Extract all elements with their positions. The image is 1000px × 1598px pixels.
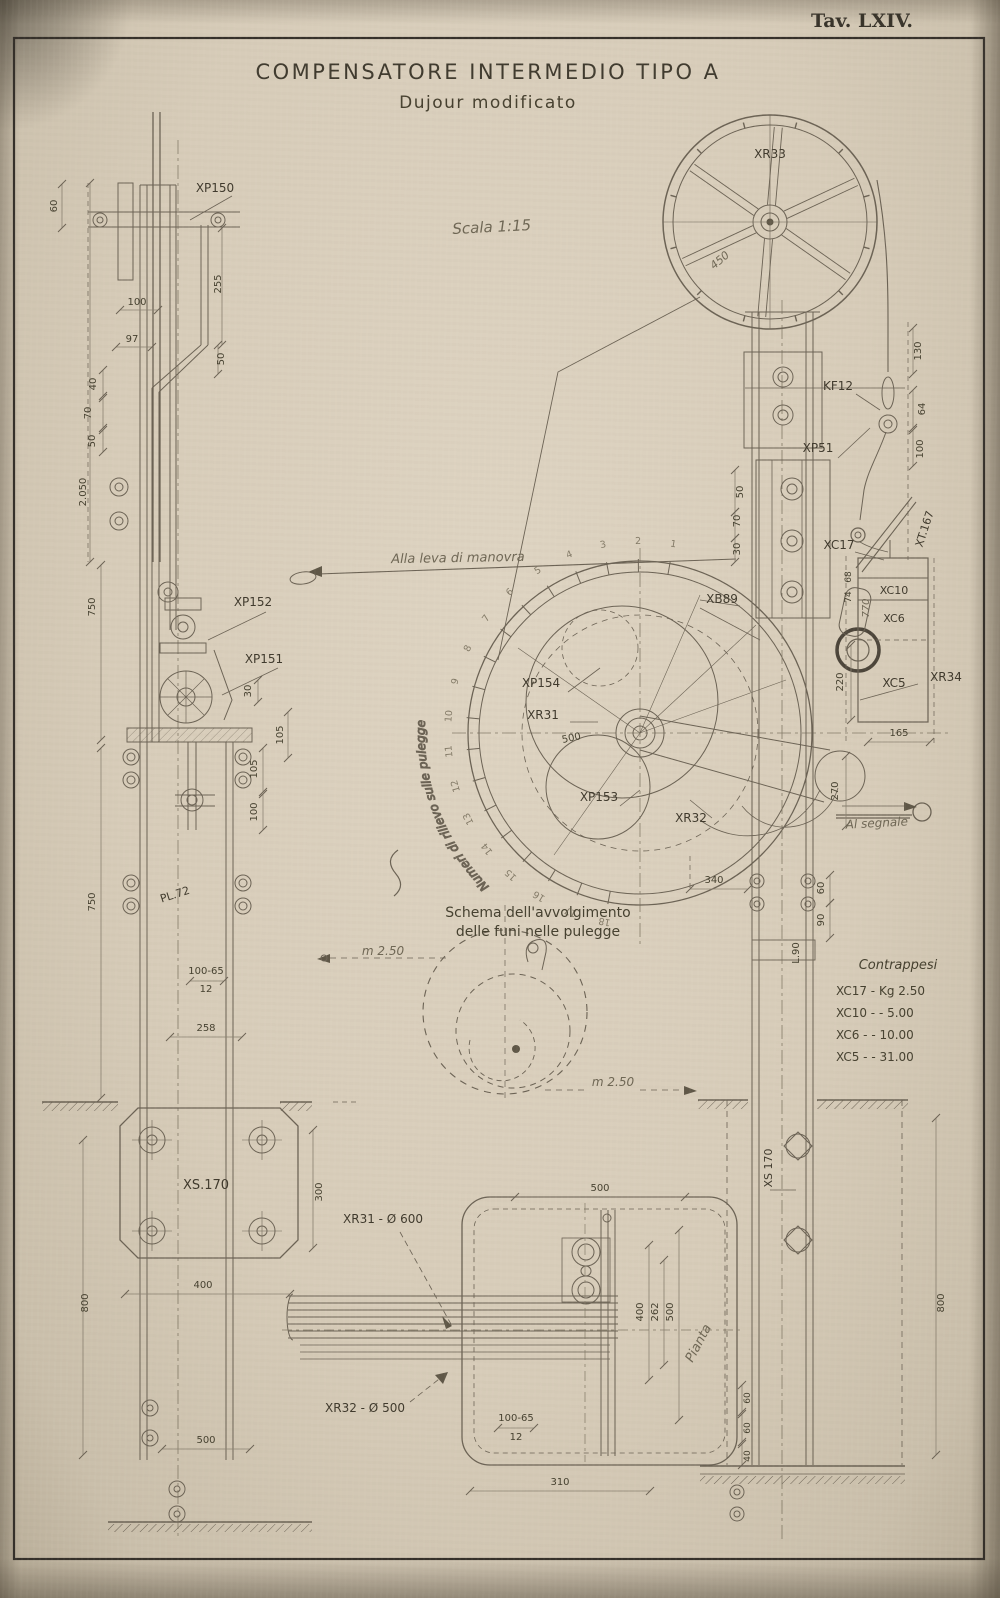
dim-258: 258 (196, 1023, 215, 1034)
dial-number-15: 15 (503, 867, 519, 883)
dim-70-post: 70 (732, 515, 743, 528)
scale-note: Scala 1:15 (452, 216, 532, 238)
dim-130: 130 (913, 341, 924, 360)
wheel-spoke (786, 228, 850, 273)
label-xr31-diam: XR31 - Ø 600 (343, 1212, 423, 1226)
dial-number-11: 11 (443, 745, 455, 758)
text-labels-layer: XP1506025510097504070502.050750XP152XP15… (49, 147, 962, 1488)
label-xr32-diam: XR32 - Ø 500 (325, 1401, 405, 1415)
plan-post-section (601, 1210, 615, 1456)
note-pianta: Pianta (683, 1322, 715, 1365)
dial-number-14: 14 (479, 841, 495, 857)
wheel-rim-tick (697, 291, 701, 295)
right-post-bolts (750, 874, 815, 960)
dial-number-12: 12 (449, 779, 463, 794)
dim-50-b: 50 (87, 435, 98, 448)
support-arm (214, 650, 232, 720)
dial-number-8: 8 (462, 643, 475, 653)
dim-60-base-b: 60 (743, 1422, 753, 1434)
dial-number-3: 3 (599, 539, 607, 551)
counterweight-table: ContrappesiXC17 - Kg 2.50XC10 - - 5.00XC… (836, 958, 938, 1064)
label-xp151: XP151 (245, 652, 283, 666)
dim-300: 300 (314, 1182, 325, 1201)
dim-m250-left: m 2.50 (362, 944, 405, 958)
dim-340: 340 (704, 875, 723, 886)
dim-255: 255 (213, 274, 224, 293)
label-xt167: XT.167 (913, 509, 937, 548)
dim-800-left: 800 (80, 1293, 91, 1312)
dim-500-plan-top: 500 (590, 1183, 609, 1194)
wheel-spoke (690, 171, 754, 216)
dim-profile-plan-top: 100-65 (498, 1413, 533, 1424)
wheel-rim-tick (743, 316, 745, 322)
wheel-spoke (775, 128, 782, 206)
dim-500-left-bottom: 500 (196, 1435, 215, 1446)
dial-number-10: 10 (443, 710, 455, 723)
wheel-rim-tick (697, 149, 701, 153)
dial-tick-6 (522, 605, 531, 615)
dim-74: 74 (844, 591, 854, 603)
dial-tick-14 (501, 830, 511, 838)
dim-310: 310 (550, 1477, 569, 1488)
operating-rope (289, 297, 736, 660)
wheel-spoke (782, 235, 846, 280)
dim-400-left: 400 (193, 1280, 212, 1291)
plate-number: Tav. LXIV. (811, 10, 913, 32)
counterweight-stack (846, 540, 928, 745)
dial-tick-8 (484, 656, 496, 662)
dim-profile-left-top: 100-65 (188, 966, 223, 977)
technical-drawing-canvas: Tav. LXIV. COMPENSATORE INTERMEDIO TIPO … (0, 0, 1000, 1598)
dial-number-5: 5 (532, 565, 543, 578)
dial-number-4: 4 (565, 549, 575, 561)
dim-97: 97 (126, 334, 139, 345)
label-xp152: XP152 (234, 595, 272, 609)
leader-lines (190, 196, 918, 818)
dim-50-a: 50 (216, 353, 227, 366)
dim-68: 68 (844, 571, 854, 583)
wheel-rim-tick (839, 149, 843, 153)
right-elevation-view (190, 115, 934, 1540)
drawing-title: COMPENSATORE INTERMEDIO TIPO A (255, 60, 720, 84)
dim-220: 220 (835, 672, 846, 691)
rope-winding-schema (317, 850, 697, 1100)
dim-770: 770 (861, 598, 872, 617)
label-xp150: XP150 (196, 181, 234, 195)
dial-graduations: 123456789101112131415161718 (443, 536, 677, 928)
wheel-rim-tick (671, 247, 677, 249)
label-xp153: XP153 (580, 790, 618, 804)
dial-mechanism-view: Numeri di rilievo sulle pulegge 12345678… (289, 297, 948, 948)
flange-plate (127, 728, 252, 742)
wheel-spoke (758, 239, 765, 317)
dim-40-a: 40 (88, 378, 99, 391)
wheel-ropes (851, 180, 916, 572)
label-xc10: XC10 (880, 584, 908, 597)
dial-number-13: 13 (461, 811, 476, 827)
plan-pulley-stack (287, 1294, 618, 1359)
label-xb89: XB89 (706, 592, 738, 606)
dim-100-right: 100 (915, 439, 926, 458)
dial-number-16: 16 (531, 888, 547, 904)
contrappesi-title: Contrappesi (859, 958, 938, 973)
dim-800-right: 800 (936, 1293, 947, 1312)
dim-90-post: 90 (816, 914, 827, 927)
note-alla-leva: Alla leva di manovra (390, 550, 525, 567)
top-anchor-plate (118, 183, 133, 280)
dial-number-9: 9 (449, 677, 461, 686)
dim-262-plan: 262 (650, 1302, 661, 1321)
wheel-rim-tick (743, 123, 745, 129)
label-xp154: XP154 (522, 676, 560, 690)
dim-l90: L.90 (791, 942, 802, 963)
wheel-rim-tick (795, 123, 797, 129)
top-bracket-rails (88, 212, 240, 227)
dim-105-a: 105 (275, 725, 286, 744)
dial-tick-7 (500, 629, 510, 637)
note-al-segnale: Al segnale (844, 814, 908, 831)
dim-2050: 2.050 (78, 478, 89, 507)
label-pl72: PL.72 (159, 884, 192, 906)
post-bolts (110, 478, 251, 914)
dim-40-base: 40 (743, 1450, 753, 1462)
dial-number-6: 6 (504, 586, 516, 598)
post-channel-right-edge (226, 742, 233, 1460)
label-xc17: XC17 (824, 538, 855, 552)
dim-270: 270 (830, 781, 841, 800)
label-kf12: KF12 (823, 379, 853, 393)
post-channel-edges (140, 185, 176, 1460)
label-xc5: XC5 (882, 676, 905, 690)
dim-100-b: 100 (249, 802, 260, 821)
dim-105-b: 105 (249, 759, 260, 778)
wheel-spoke (787, 185, 858, 218)
note-schema-1: Schema dell'avvolgimento (445, 905, 630, 921)
dim-30-post: 30 (732, 543, 743, 556)
wheel-rim-tick (671, 195, 677, 197)
drawing-subtitle: Dujour modificato (399, 93, 577, 113)
scanned-drawing-page: Tav. LXIV. COMPENSATORE INTERMEDIO TIPO … (0, 0, 1000, 1598)
contrappesi-row-XC17: XC17 - Kg 2.50 (836, 984, 925, 998)
dimension-lines-layer (58, 179, 940, 1495)
dial-tick-5 (547, 586, 554, 597)
dial-number-1: 1 (669, 538, 677, 550)
dim-165: 165 (889, 728, 908, 739)
post-bracket-upper (744, 352, 822, 448)
dim-400-plan: 400 (635, 1302, 646, 1321)
dim-70-a: 70 (83, 407, 94, 420)
dim-60-base-a: 60 (743, 1392, 753, 1404)
contrappesi-row-XC6: XC6 - - 10.00 (836, 1028, 914, 1042)
label-xr33: XR33 (754, 147, 786, 161)
dim-m250-right: m 2.50 (592, 1075, 635, 1089)
wheel-spoke (766, 239, 773, 317)
pulley-xr31-circle (526, 606, 718, 798)
wheel-rim-tick (864, 195, 870, 197)
pulley-xr32-circle (546, 735, 650, 839)
dim-profile-left-bottom: 12 (200, 984, 213, 995)
label-xc6: XC6 (883, 612, 904, 625)
contrappesi-row-XC5: XC5 - - 31.00 (836, 1050, 914, 1064)
contrappesi-row-XC10: XC10 - - 5.00 (836, 1006, 914, 1020)
dial-tick-15 (523, 852, 532, 862)
label-xp51: XP51 (803, 441, 834, 455)
dim-100-left: 100 (127, 297, 146, 308)
dim-750-lower: 750 (87, 892, 98, 911)
note-schema-2: delle funi nelle pulegge (456, 924, 620, 940)
dim-30-mid: 30 (243, 685, 254, 698)
dim-50-post: 50 (735, 486, 746, 499)
dial-tick-16 (548, 870, 555, 881)
dim-500-plan-right: 500 (665, 1302, 676, 1321)
wheel-rim-tick (839, 291, 843, 295)
base-right (700, 1466, 905, 1521)
label-xs170-plate: XS.170 (183, 1178, 229, 1193)
dim-750-upper: 750 (87, 597, 98, 616)
wheel-spoke (767, 127, 774, 205)
label-xr34: XR34 (930, 670, 962, 684)
ground-line-left (42, 1102, 312, 1111)
dim-profile-plan-bottom: 12 (510, 1432, 523, 1443)
wheel-rim-tick (864, 247, 870, 249)
dim-450-wheel: 450 (708, 249, 732, 272)
wheel-rim-tick (795, 316, 797, 322)
dial-number-2: 2 (635, 536, 641, 547)
label-xs170-right: XS 170 (762, 1148, 775, 1187)
plan-view (282, 1197, 740, 1465)
wheel-spoke (694, 164, 758, 209)
label-xr31: XR31 (527, 708, 559, 722)
dial-number-7: 7 (480, 613, 492, 624)
dim-60-post: 60 (816, 882, 827, 895)
rope-hook-left (390, 850, 400, 896)
dial-tick-13 (484, 805, 496, 811)
dim-60-left-top: 60 (49, 200, 60, 213)
dim-64: 64 (917, 403, 928, 416)
label-xr32: XR32 (675, 811, 707, 825)
wheel-spoke (784, 178, 855, 211)
base-anchors-left (108, 1400, 312, 1532)
